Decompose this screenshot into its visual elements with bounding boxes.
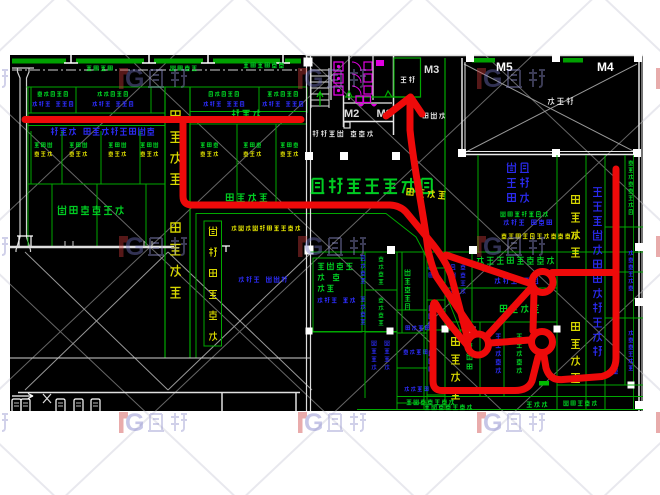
- svg-text:M4: M4: [597, 60, 614, 74]
- svg-text:G: G: [125, 409, 144, 437]
- svg-text:G: G: [483, 65, 502, 93]
- svg-text:G: G: [125, 233, 144, 261]
- svg-text:G: G: [304, 65, 323, 93]
- svg-text:M2: M2: [344, 108, 359, 120]
- svg-text:G: G: [483, 233, 502, 261]
- svg-text:G: G: [125, 65, 144, 93]
- svg-text:G: G: [304, 233, 323, 261]
- svg-text:G: G: [483, 409, 502, 437]
- svg-text:G: G: [304, 409, 323, 437]
- svg-text:M3: M3: [424, 64, 439, 76]
